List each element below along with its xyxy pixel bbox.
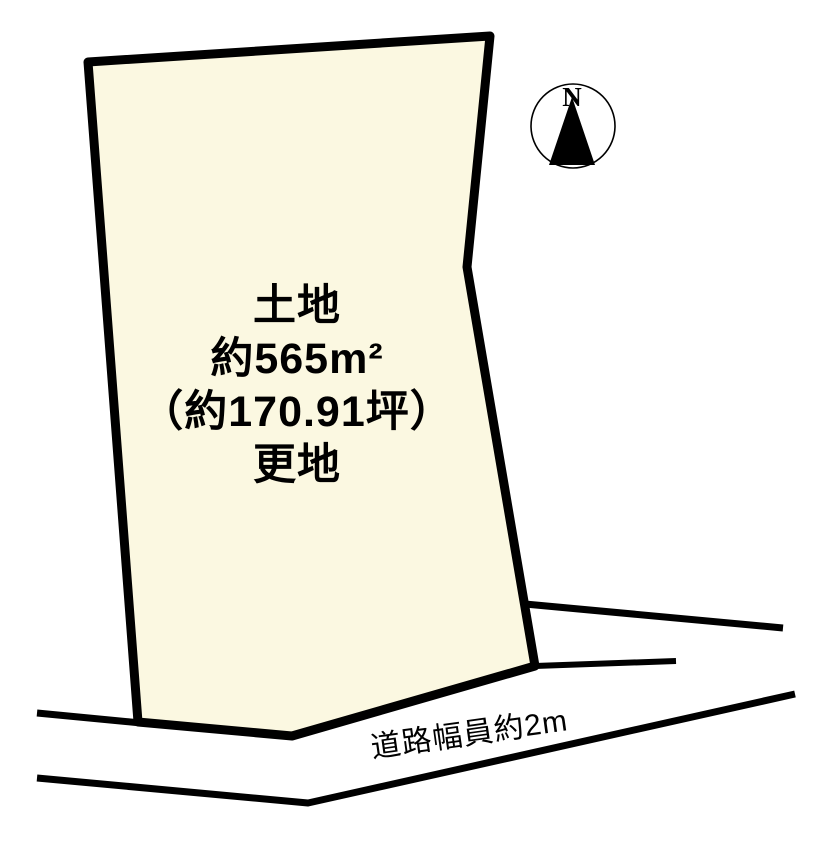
road-edge-left-top-line (37, 713, 141, 723)
road-edge-right-short-line (535, 661, 676, 666)
parcel-label-area-sqm: 約565m² (140, 333, 454, 386)
compass: N (531, 82, 615, 168)
road-edge-upper-right-line (525, 604, 783, 628)
compass-north-label: N (562, 82, 582, 112)
parcel-label-block: 土地 約565m² （約170.91坪） 更地 (140, 280, 454, 492)
parcel-label-area-tsubo: （約170.91坪） (140, 386, 454, 439)
parcel-label-condition: 更地 (140, 439, 454, 492)
land-plot-diagram: N 土地 約565m² （約170.91坪） 更地 道路幅員約2m (0, 0, 833, 847)
parcel-label-title: 土地 (140, 280, 454, 333)
